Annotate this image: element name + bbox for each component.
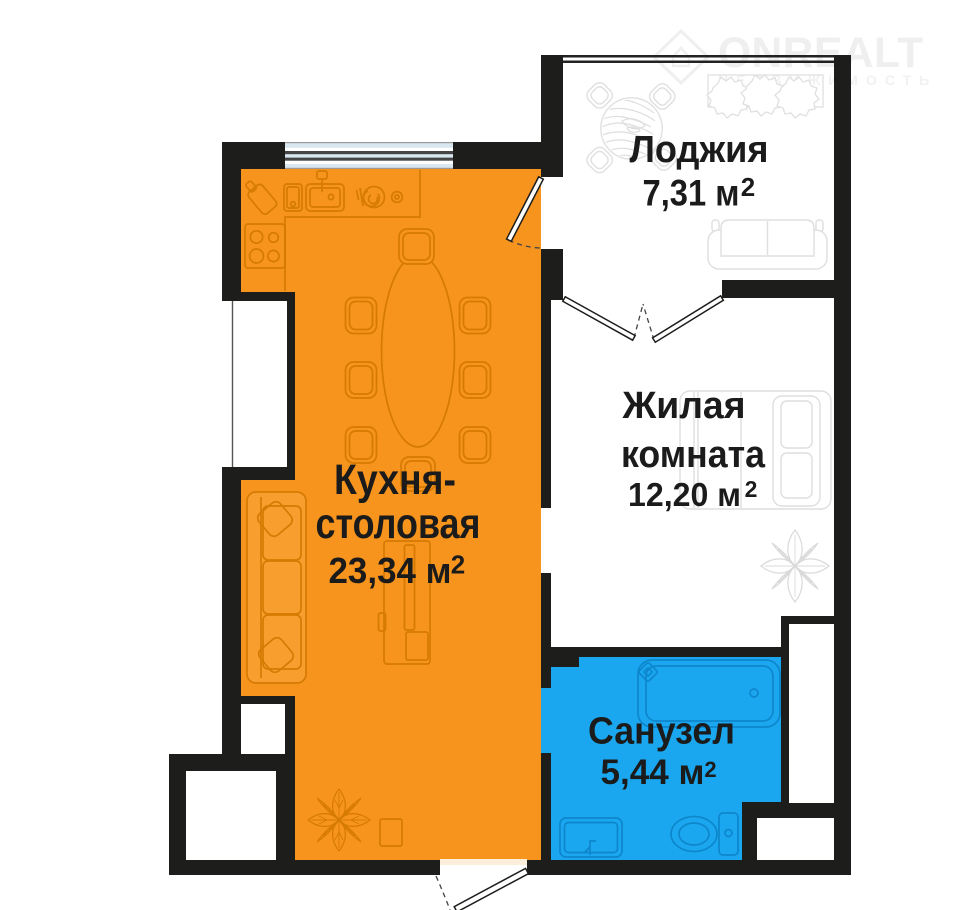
svg-text:комната: комната [621,434,766,476]
svg-text:2: 2 [451,550,465,580]
svg-text:2: 2 [704,757,716,782]
svg-text:23,34 м: 23,34 м [329,550,452,591]
svg-text:Кухня-: Кухня- [334,456,456,504]
svg-text:Лоджия: Лоджия [630,129,769,171]
svg-text:ONREALT: ONREALT [718,30,924,77]
svg-text:Санузел: Санузел [588,711,735,753]
svg-text:2: 2 [741,172,755,202]
svg-text:5,44 м: 5,44 м [601,753,705,792]
svg-text:2: 2 [745,476,758,502]
svg-text:7,31 м: 7,31 м [643,173,740,214]
svg-text:Жилая: Жилая [622,385,746,427]
svg-text:столовая: столовая [316,500,481,548]
svg-text:12,20 м: 12,20 м [628,476,741,513]
